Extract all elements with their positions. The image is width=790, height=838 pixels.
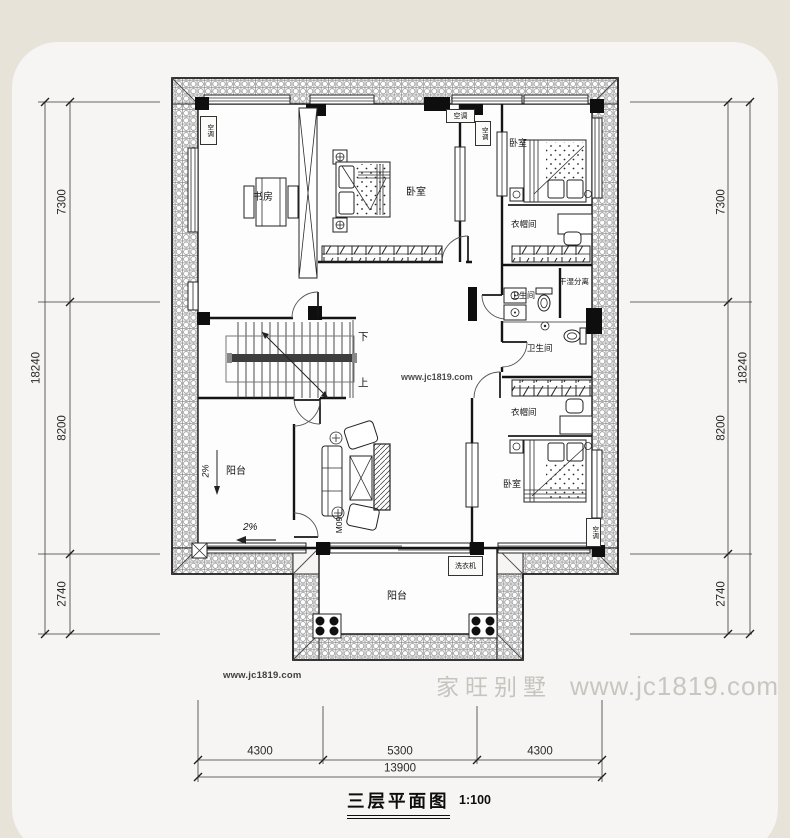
room-label-bathroom-large: 卫生间 xyxy=(527,344,553,353)
ac-label-bottom-right: 空调 xyxy=(586,518,601,547)
dim-left-2740: 2740 xyxy=(57,581,69,607)
room-label-dry-wet: 干湿分离 xyxy=(559,278,589,286)
slope-label-bottom: 2% xyxy=(243,523,257,533)
door-code-label: M09 xyxy=(335,517,344,534)
room-label-bedroom-top: 卧室 xyxy=(406,188,426,198)
dim-right-7300: 7300 xyxy=(716,189,728,215)
ac-label-top-left: 空调 xyxy=(200,116,217,145)
washing-machine-label: 洗衣机 xyxy=(448,556,483,576)
room-label-balcony-bottom: 阳台 xyxy=(387,592,407,602)
dim-right-8200: 8200 xyxy=(716,415,728,441)
room-label-cloakroom-top: 衣帽间 xyxy=(511,220,537,229)
wardrobe-column xyxy=(299,108,317,278)
dim-bottom-total: 13900 xyxy=(384,763,416,775)
watermark-bottom-left: www.jc1819.com xyxy=(223,670,302,681)
room-label-study: 书房 xyxy=(253,193,273,203)
dim-right-2740: 2740 xyxy=(716,581,728,607)
dim-bottom-4300-left: 4300 xyxy=(247,746,273,758)
room-label-bathroom-small: 卫生间 xyxy=(511,292,535,300)
room-label-balcony-left: 阳台 xyxy=(226,467,246,477)
stairs-up-label: 上 xyxy=(358,378,369,389)
screenshot-root: 空调 空调 空调 空调 洗衣机 书房 卧室 卧室 衣帽间 干湿分离 卫生间 卫生… xyxy=(0,0,790,838)
watermark-plan-center: www.jc1819.com xyxy=(401,373,473,382)
room-label-cloakroom-bottom: 衣帽间 xyxy=(511,408,537,417)
room-label-bedroom-right-bottom: 卧室 xyxy=(503,480,521,489)
dim-left-7300: 7300 xyxy=(57,189,69,215)
drawing-title: 三层平面图 xyxy=(347,788,450,819)
brand-site: www.jc1819.com xyxy=(570,671,779,702)
dim-left-total: 18240 xyxy=(31,352,43,384)
stairs-down-label: 下 xyxy=(358,332,369,343)
dim-bottom-5300: 5300 xyxy=(387,746,413,758)
drawing-scale: 1:100 xyxy=(459,793,491,807)
room-label-bedroom-right-top: 卧室 xyxy=(509,139,527,148)
floor-plan-drawing xyxy=(0,0,790,838)
dim-left-8200: 8200 xyxy=(57,415,69,441)
ac-label-top-middle-2: 空调 xyxy=(475,121,491,146)
ac-label-top-middle: 空调 xyxy=(446,109,475,123)
slope-label-left: 2% xyxy=(202,464,211,477)
dim-bottom-4300-right: 4300 xyxy=(527,746,553,758)
dim-right-total: 18240 xyxy=(738,352,750,384)
brand-watermark: 家旺别墅 www.jc1819.com xyxy=(436,668,779,702)
brand-name: 家旺别墅 xyxy=(436,668,552,702)
